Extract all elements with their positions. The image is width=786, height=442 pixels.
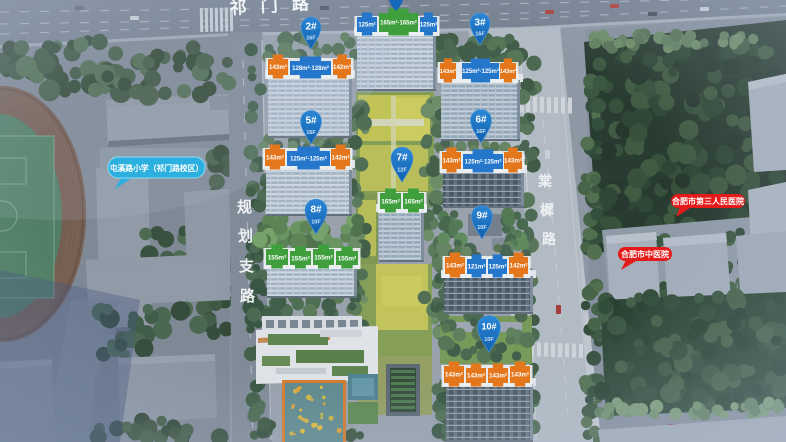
- svg-text:门: 门: [260, 0, 278, 16]
- svg-text:祁: 祁: [229, 0, 247, 18]
- svg-text:128m²·128m²: 128m²·128m²: [292, 65, 329, 72]
- svg-text:3#: 3#: [474, 18, 486, 29]
- svg-text:143m²: 143m²: [443, 158, 461, 165]
- svg-text:10#: 10#: [481, 322, 496, 332]
- svg-text:165m²: 165m²: [404, 198, 422, 205]
- svg-text:16F: 16F: [476, 129, 486, 135]
- svg-text:142m²: 142m²: [510, 263, 528, 270]
- svg-text:143m²: 143m²: [446, 263, 464, 270]
- svg-text:屯溪路小学（祁门路校区）: 屯溪路小学（祁门路校区）: [110, 163, 204, 173]
- svg-text:155m²: 155m²: [338, 255, 356, 262]
- svg-text:10F: 10F: [311, 219, 321, 225]
- svg-text:125m²·125m²: 125m²·125m²: [462, 68, 499, 75]
- svg-text:142m²: 142m²: [333, 64, 351, 71]
- svg-text:125m²: 125m²: [489, 264, 507, 271]
- svg-text:165m²·165m²: 165m²·165m²: [380, 20, 417, 27]
- svg-text:155m²: 155m²: [314, 254, 332, 261]
- svg-text:6#: 6#: [475, 115, 487, 126]
- svg-text:樨: 樨: [540, 202, 554, 218]
- svg-text:155m²: 155m²: [291, 255, 309, 262]
- svg-text:142m²: 142m²: [332, 155, 350, 162]
- svg-text:规: 规: [237, 199, 252, 216]
- svg-text:5#: 5#: [305, 116, 317, 127]
- svg-text:2#: 2#: [305, 22, 317, 33]
- svg-text:121m²: 121m²: [468, 264, 486, 271]
- svg-text:8#: 8#: [310, 205, 322, 216]
- svg-text:16F: 16F: [306, 130, 316, 136]
- svg-text:路: 路: [291, 0, 310, 14]
- svg-text:155m²: 155m²: [268, 254, 286, 261]
- svg-text:125m²: 125m²: [420, 22, 437, 29]
- svg-text:10F: 10F: [477, 225, 487, 231]
- svg-text:143m²: 143m²: [467, 373, 485, 380]
- svg-text:16F: 16F: [306, 36, 316, 42]
- svg-text:125m²·125m²: 125m²·125m²: [290, 156, 327, 163]
- svg-text:143m²: 143m²: [445, 372, 463, 379]
- svg-text:165m²: 165m²: [381, 198, 399, 205]
- svg-text:125m²·125m²: 125m²·125m²: [465, 159, 502, 166]
- svg-text:143m²: 143m²: [500, 68, 516, 75]
- svg-text:支: 支: [238, 257, 255, 275]
- svg-text:10F: 10F: [484, 337, 494, 343]
- svg-text:16F: 16F: [475, 32, 485, 38]
- svg-text:143m²: 143m²: [489, 373, 507, 380]
- svg-text:路: 路: [240, 287, 256, 305]
- svg-text:143m²: 143m²: [504, 158, 522, 165]
- svg-text:合肥市中医院: 合肥市中医院: [620, 249, 669, 259]
- svg-text:棠: 棠: [537, 173, 553, 189]
- svg-text:划: 划: [238, 227, 253, 245]
- svg-text:143m²: 143m²: [266, 155, 284, 162]
- svg-text:125m²: 125m²: [358, 22, 375, 29]
- svg-text:7#: 7#: [396, 153, 408, 164]
- svg-text:143m²: 143m²: [440, 68, 456, 75]
- svg-text:12F: 12F: [397, 167, 407, 173]
- svg-text:143m²: 143m²: [511, 372, 529, 379]
- svg-text:合肥市第三人民医院: 合肥市第三人民医院: [671, 196, 744, 206]
- svg-text:9#: 9#: [476, 211, 488, 222]
- svg-text:143m²: 143m²: [269, 64, 287, 71]
- svg-text:路: 路: [542, 231, 557, 247]
